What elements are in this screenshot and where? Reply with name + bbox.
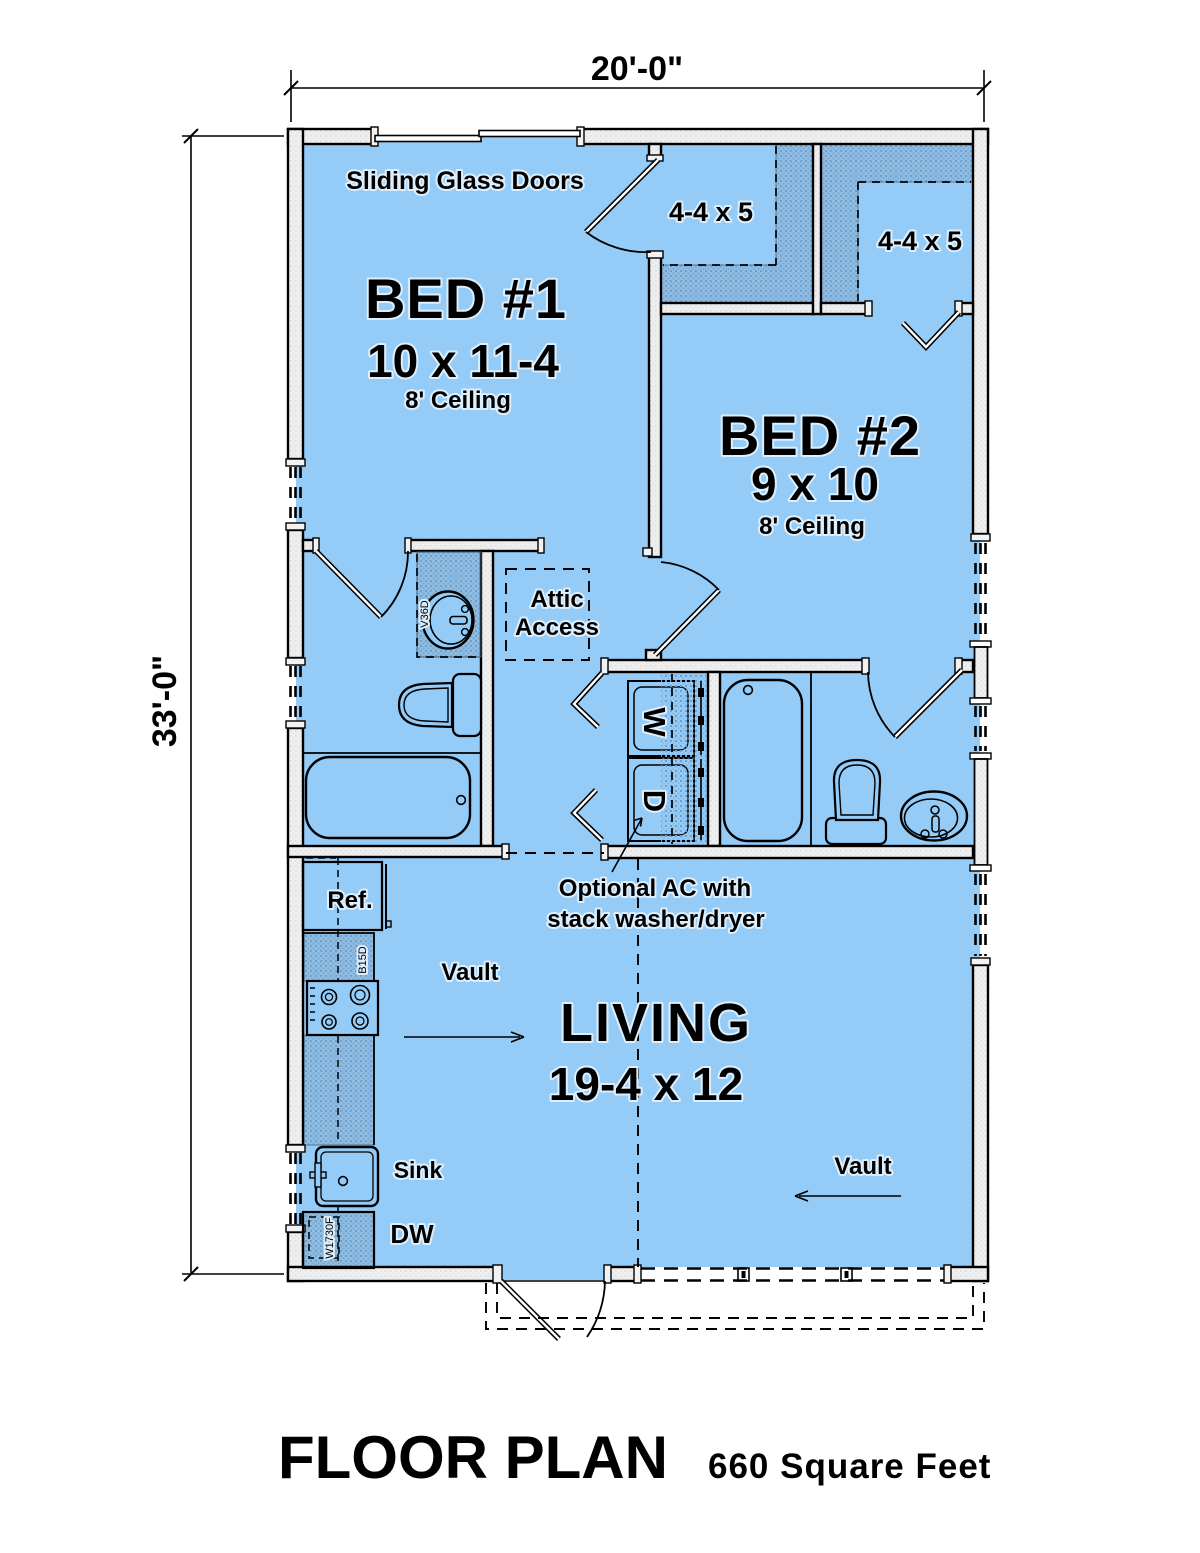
svg-text:Attic: Attic xyxy=(530,586,583,613)
svg-text:LIVING: LIVING xyxy=(560,993,752,1053)
svg-text:Vault: Vault xyxy=(441,959,498,986)
svg-text:V36D: V36D xyxy=(419,600,431,628)
svg-text:Vault: Vault xyxy=(834,1153,891,1180)
svg-text:Ref.: Ref. xyxy=(327,887,372,914)
svg-text:9 x 10: 9 x 10 xyxy=(751,458,879,510)
svg-text:DW: DW xyxy=(390,1219,434,1249)
svg-text:10 x 11-4: 10 x 11-4 xyxy=(367,335,559,387)
svg-text:4-4 x 5: 4-4 x 5 xyxy=(669,197,753,227)
svg-text:8' Ceiling: 8' Ceiling xyxy=(759,513,865,540)
svg-text:D: D xyxy=(637,790,672,812)
svg-text:Sink: Sink xyxy=(394,1157,443,1183)
svg-text:Sliding Glass Doors: Sliding Glass Doors xyxy=(346,167,584,195)
svg-text:stack washer/dryer: stack washer/dryer xyxy=(547,906,764,933)
svg-text:Optional AC with: Optional AC with xyxy=(559,875,751,902)
svg-text:W: W xyxy=(637,707,672,737)
svg-text:33'-0": 33'-0" xyxy=(146,655,184,747)
svg-text:W1730F: W1730F xyxy=(324,1217,336,1259)
svg-text:19-4 x 12: 19-4 x 12 xyxy=(549,1058,743,1110)
svg-text:BED #1: BED #1 xyxy=(365,267,567,330)
svg-text:4-4 x 5: 4-4 x 5 xyxy=(878,226,962,256)
svg-text:660 Square Feet: 660 Square Feet xyxy=(708,1447,991,1486)
svg-text:8' Ceiling: 8' Ceiling xyxy=(405,387,511,414)
svg-text:20'-0": 20'-0" xyxy=(591,50,683,88)
svg-text:B15D: B15D xyxy=(357,946,369,974)
svg-text:FLOOR PLAN: FLOOR PLAN xyxy=(278,1424,668,1491)
svg-text:Access: Access xyxy=(515,614,599,641)
